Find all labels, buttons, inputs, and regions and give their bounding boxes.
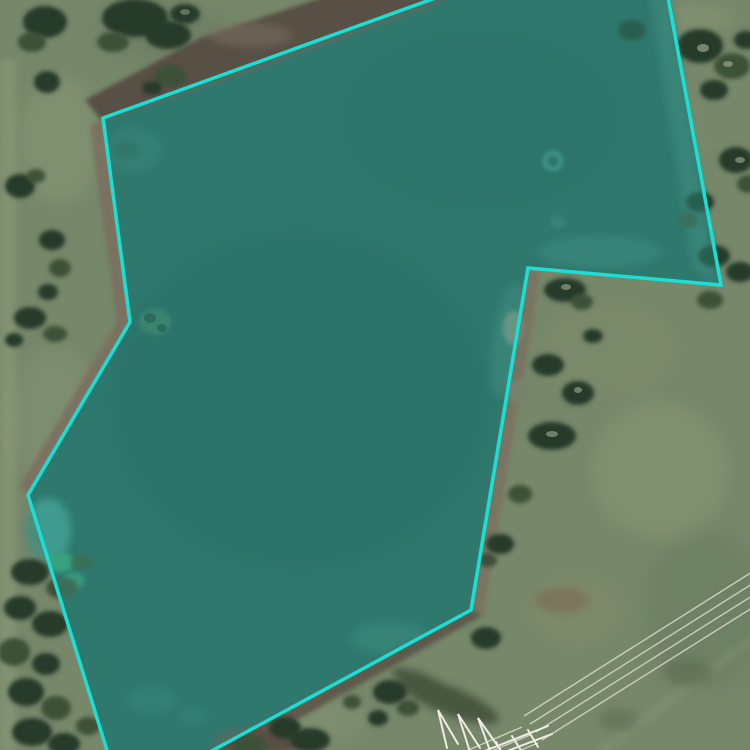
satellite-view [0, 0, 750, 750]
map-canvas[interactable] [0, 0, 750, 750]
dirt-patch [536, 587, 588, 613]
